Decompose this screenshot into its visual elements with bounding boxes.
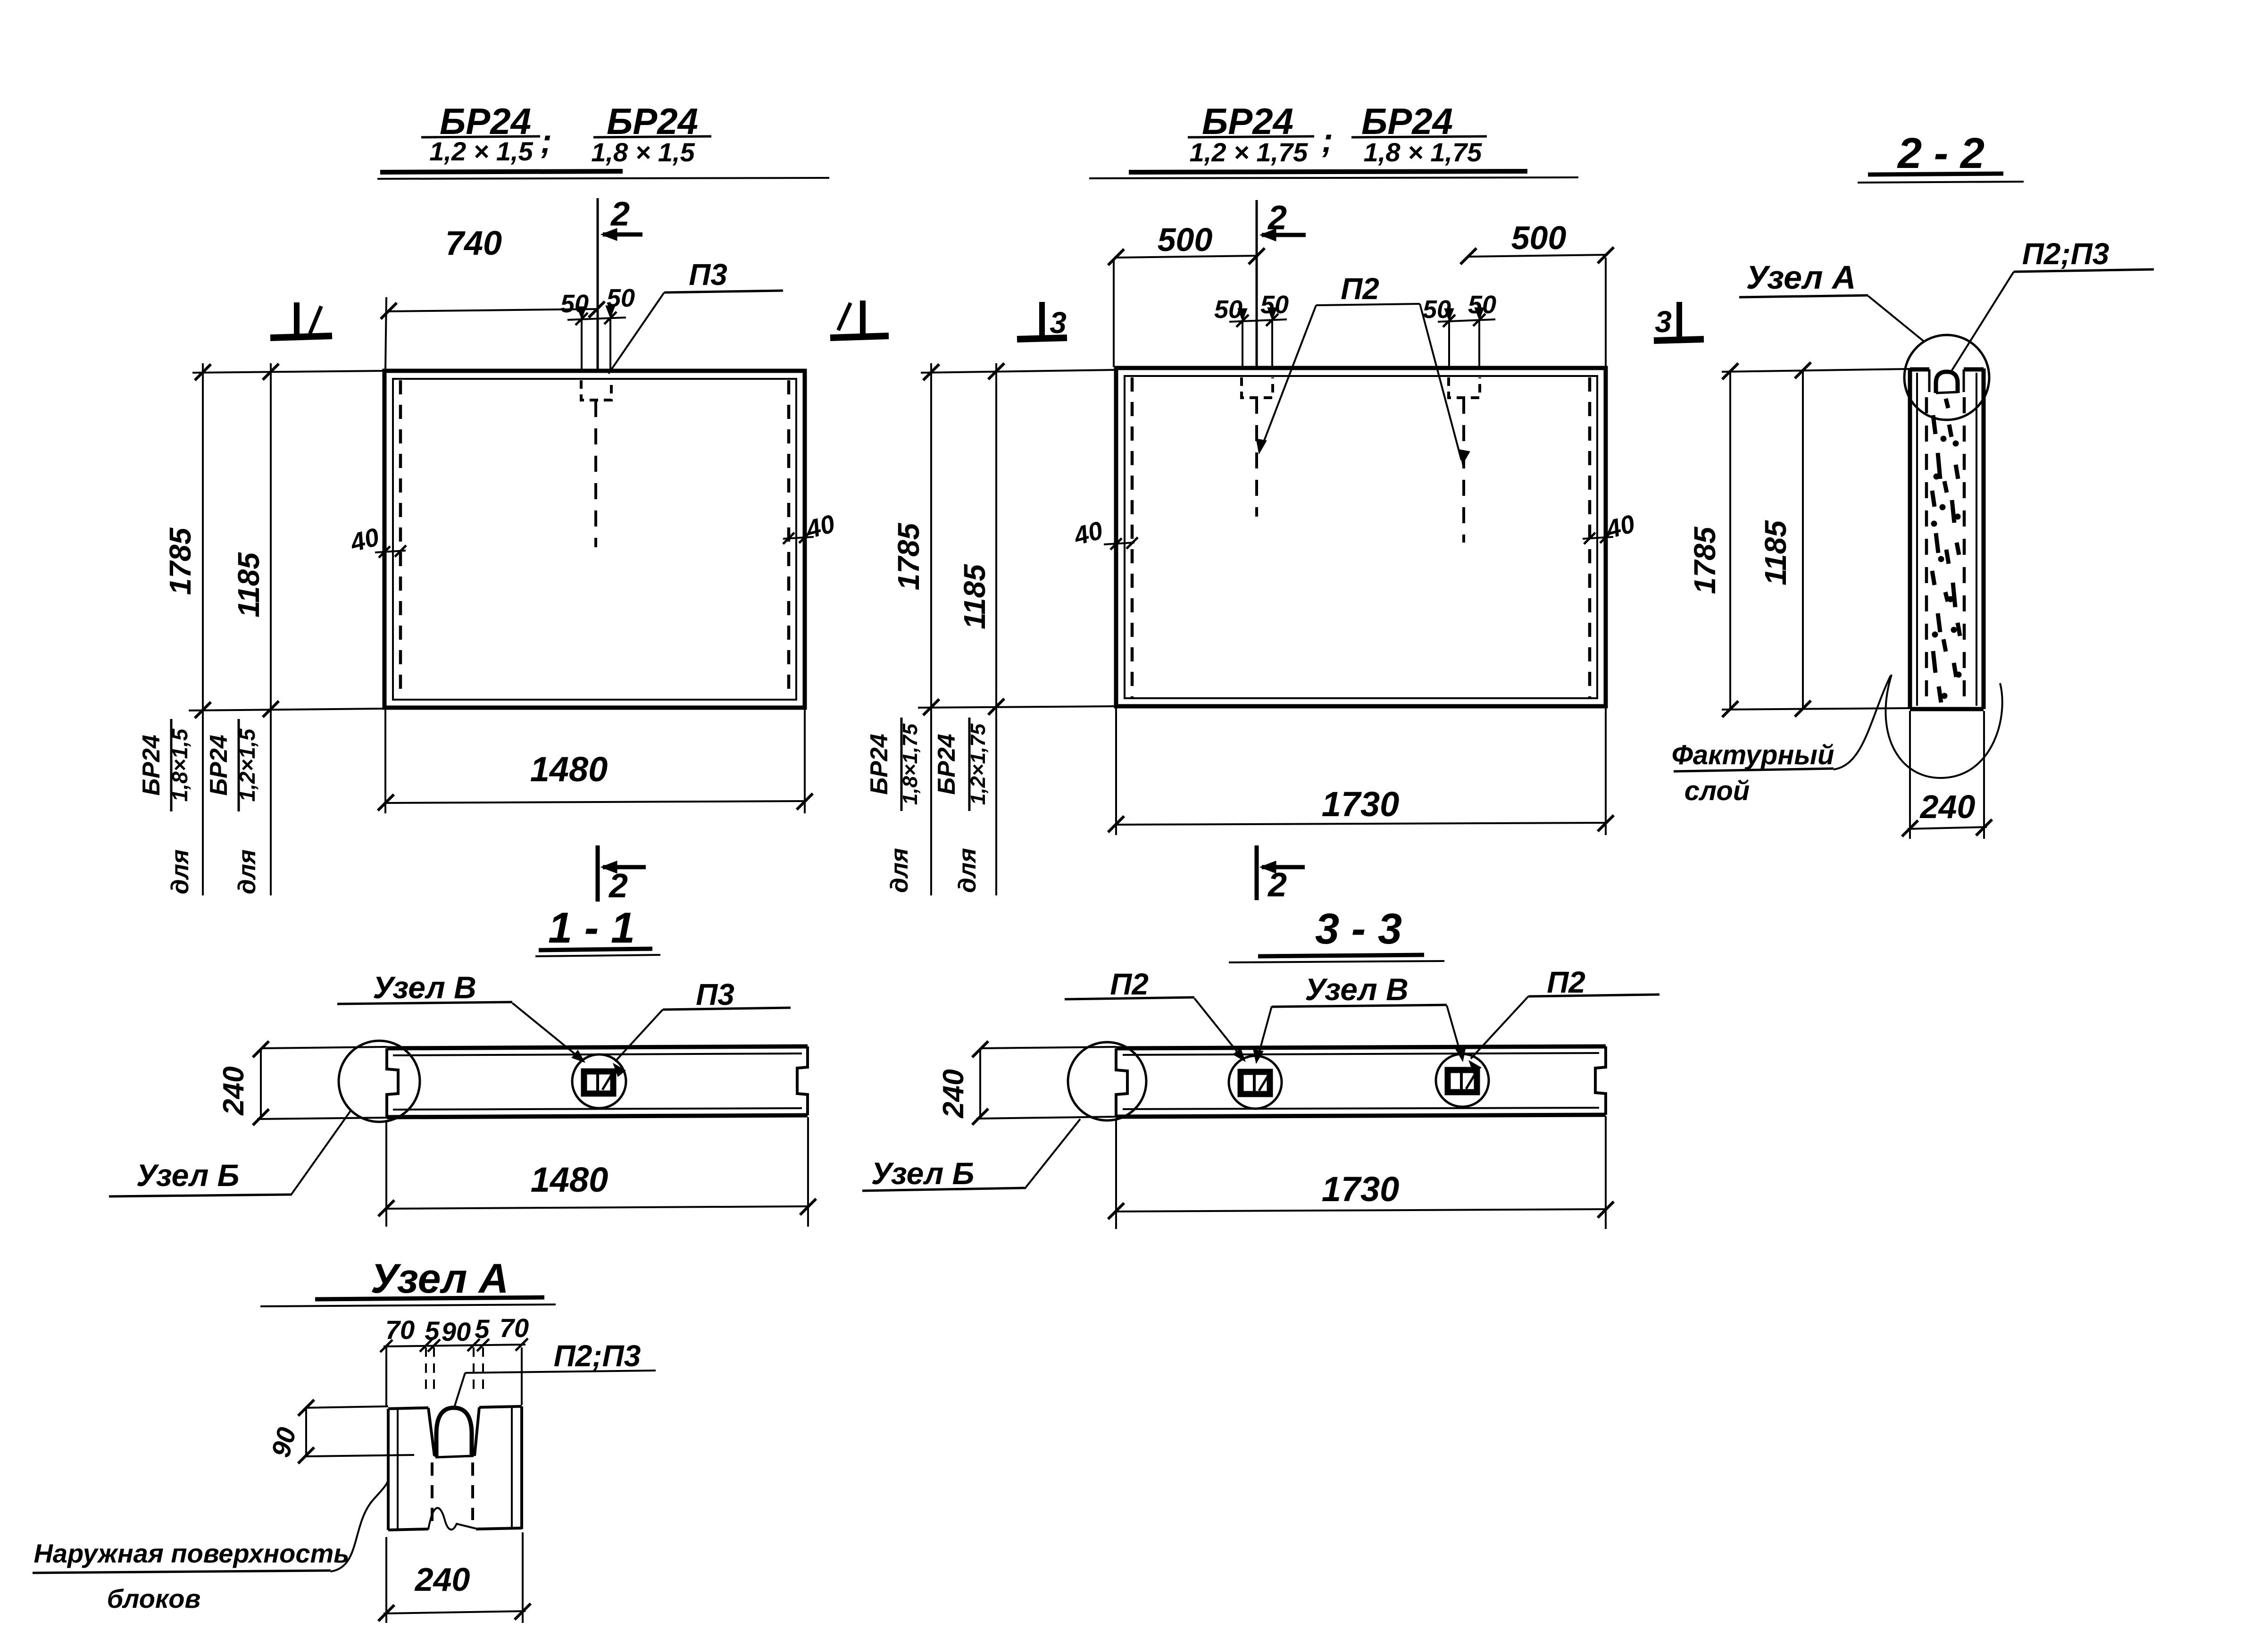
svg-text:1480: 1480 <box>531 1160 609 1199</box>
svg-text:Узел В: Узел В <box>1305 972 1409 1007</box>
svg-text:для: для <box>233 849 261 894</box>
svg-text:Фактурный: Фактурный <box>1672 740 1834 770</box>
svg-text:1,8 × 1,75: 1,8 × 1,75 <box>1364 137 1483 167</box>
svg-text:1185: 1185 <box>232 552 266 618</box>
svg-text:740: 740 <box>445 225 502 262</box>
svg-text:1,8×1,75: 1,8×1,75 <box>899 723 922 805</box>
svg-text:1730: 1730 <box>1322 1170 1400 1209</box>
svg-text:;: ; <box>541 123 552 160</box>
svg-text:90: 90 <box>442 1317 471 1346</box>
svg-text:БР24: БР24 <box>933 734 960 794</box>
svg-text:500: 500 <box>1158 221 1213 258</box>
svg-text:1785: 1785 <box>1688 526 1722 594</box>
svg-text:П3: П3 <box>689 258 727 292</box>
svg-text:3: 3 <box>1655 305 1672 339</box>
svg-text:1 - 1: 1 - 1 <box>548 904 635 952</box>
svg-text:500: 500 <box>1511 219 1567 256</box>
svg-text:50: 50 <box>560 290 589 318</box>
svg-text:2: 2 <box>1267 199 1287 237</box>
svg-text:1,8×1,5: 1,8×1,5 <box>167 728 192 802</box>
svg-text:1,2 × 1,5: 1,2 × 1,5 <box>429 136 533 166</box>
svg-text:БР24: БР24 <box>138 735 165 795</box>
svg-text:Узел А: Узел А <box>371 1255 509 1302</box>
svg-text:П2: П2 <box>1547 965 1585 999</box>
svg-text:2: 2 <box>1267 866 1287 904</box>
svg-text:240: 240 <box>1919 788 1976 825</box>
svg-text:слой: слой <box>1684 776 1750 806</box>
svg-text:2: 2 <box>608 867 628 905</box>
svg-text:1185: 1185 <box>958 564 992 629</box>
svg-text:Узел А: Узел А <box>1746 259 1856 296</box>
svg-text:БР24: БР24 <box>866 734 893 794</box>
svg-text:П2: П2 <box>1110 967 1149 1001</box>
svg-text:Узел Б: Узел Б <box>871 1156 975 1191</box>
svg-text:П2;П3: П2;П3 <box>554 1339 641 1373</box>
svg-text:2: 2 <box>610 195 630 233</box>
svg-text:1480: 1480 <box>530 750 608 789</box>
svg-text:П3: П3 <box>696 978 734 1011</box>
svg-text:Узел В: Узел В <box>373 970 476 1005</box>
svg-text:50: 50 <box>1260 291 1289 319</box>
svg-text:1730: 1730 <box>1322 785 1400 824</box>
svg-text:1,2×1,75: 1,2×1,75 <box>967 723 990 805</box>
svg-text:240: 240 <box>217 1066 250 1115</box>
svg-text:1185: 1185 <box>1759 520 1793 585</box>
svg-text:;: ; <box>1322 122 1333 159</box>
svg-text:3: 3 <box>1050 306 1067 340</box>
svg-text:Наружная поверхность: Наружная поверхность <box>33 1538 349 1568</box>
svg-text:1785: 1785 <box>163 527 197 595</box>
svg-text:1785: 1785 <box>892 522 926 590</box>
svg-text:50: 50 <box>1468 291 1496 319</box>
svg-text:240: 240 <box>937 1069 970 1118</box>
svg-text:для: для <box>167 849 194 894</box>
svg-text:П2;П3: П2;П3 <box>2022 237 2110 271</box>
svg-text:70: 70 <box>500 1313 529 1343</box>
svg-text:П2: П2 <box>1341 272 1379 306</box>
svg-text:БР24: БР24 <box>205 735 233 795</box>
svg-text:блоков: блоков <box>107 1584 201 1613</box>
svg-text:Узел Б: Узел Б <box>136 1158 240 1193</box>
svg-text:2 - 2: 2 - 2 <box>1897 129 1984 177</box>
svg-text:для: для <box>886 848 913 893</box>
svg-text:240: 240 <box>414 1561 470 1598</box>
svg-text:для: для <box>954 848 981 893</box>
svg-text:70: 70 <box>385 1315 415 1345</box>
svg-text:3 - 3: 3 - 3 <box>1315 905 1402 953</box>
svg-text:1,2×1,5: 1,2×1,5 <box>235 728 259 802</box>
svg-text:1,2 × 1,75: 1,2 × 1,75 <box>1190 137 1309 167</box>
svg-text:1,8 × 1,5: 1,8 × 1,5 <box>591 137 695 167</box>
